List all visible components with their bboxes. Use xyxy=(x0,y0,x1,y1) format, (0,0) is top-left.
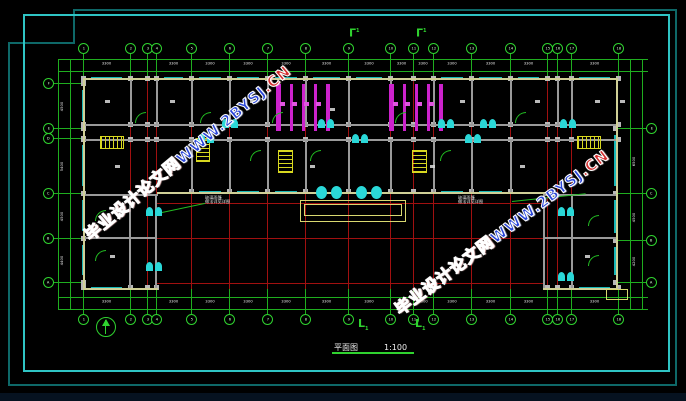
dimension-text: 3300 xyxy=(92,61,121,65)
dimension-chain-line xyxy=(630,59,631,310)
axis-extension-line xyxy=(618,128,646,129)
grid-bubble-top: 6 xyxy=(224,43,235,54)
grid-bubble-top: 7 xyxy=(262,43,273,54)
partition-wall xyxy=(471,80,473,125)
column-grid-line-horizontal xyxy=(83,238,618,239)
double-door xyxy=(480,119,496,128)
axis-extension-line xyxy=(229,52,230,78)
partition-wall xyxy=(156,80,158,125)
grid-bubble-top: 2 xyxy=(125,43,136,54)
grid-bubble-top: 9 xyxy=(343,43,354,54)
partition-wall xyxy=(348,80,350,125)
axis-extension-line xyxy=(510,289,511,315)
dimension-text: 3300 xyxy=(394,61,408,65)
annotation-left: 玻璃雨篷做法详见详图 xyxy=(205,196,241,208)
dimension-text: 5400 xyxy=(60,159,64,174)
grid-bubble-left: C xyxy=(43,188,54,199)
partition-wall xyxy=(305,141,307,193)
axis-extension-line xyxy=(305,289,306,315)
exterior-wall xyxy=(83,288,158,290)
grid-bubble-bottom: 8 xyxy=(300,314,311,325)
interior-wall xyxy=(83,139,618,141)
room-label-mark xyxy=(105,100,110,103)
axis-extension-line xyxy=(52,83,83,84)
axis-extension-line xyxy=(52,238,83,239)
axis-extension-line xyxy=(191,52,192,78)
dimension-text: 3300 xyxy=(313,299,340,303)
axis-extension-line xyxy=(130,52,131,78)
drawing-scale: 1:100 xyxy=(384,343,407,352)
room-label-mark xyxy=(330,108,335,111)
partition-wall xyxy=(348,141,350,193)
door-swing-arc xyxy=(250,150,261,161)
dimension-text: 3300 xyxy=(274,299,298,303)
double-door xyxy=(352,134,368,143)
grid-bubble-bottom: 12 xyxy=(428,314,439,325)
dimension-text: 4500 xyxy=(632,210,636,225)
grid-bubble-bottom: 5 xyxy=(186,314,197,325)
room-label-mark xyxy=(460,100,465,103)
dimension-text: 3300 xyxy=(313,61,340,65)
interior-wall xyxy=(83,124,618,126)
dimension-text: 3300 xyxy=(356,61,382,65)
dimension-text: 3300 xyxy=(417,61,429,65)
axis-extension-line xyxy=(390,52,391,78)
grid-bubble-bottom: 13 xyxy=(466,314,477,325)
toilet-stalls xyxy=(389,84,443,131)
grid-bubble-top: 12 xyxy=(428,43,439,54)
exterior-wall xyxy=(83,78,618,80)
grid-bubble-left: A xyxy=(43,277,54,288)
grid-bubble-top: 16 xyxy=(552,43,563,54)
partition-wall xyxy=(191,80,193,125)
dimension-chain-line xyxy=(58,59,59,310)
room-label-mark xyxy=(110,255,115,258)
dimension-text: 3300 xyxy=(198,61,222,65)
axis-extension-line xyxy=(83,289,84,315)
grid-bubble-top: 5 xyxy=(186,43,197,54)
grid-bubble-bottom: 1 xyxy=(78,314,89,325)
dimension-text: 4500 xyxy=(60,99,64,114)
exterior-wall xyxy=(157,192,545,194)
axis-extension-line xyxy=(147,52,148,78)
grid-bubble-bottom: 6 xyxy=(224,314,235,325)
dimension-text: 3300 xyxy=(163,299,185,303)
door-swing-arc xyxy=(440,150,451,161)
entrance-door xyxy=(356,186,382,199)
double-door xyxy=(438,119,454,128)
exterior-wall xyxy=(83,78,85,290)
axis-extension-line xyxy=(471,52,472,78)
dimension-text: 4500 xyxy=(60,209,64,224)
double-door xyxy=(146,262,162,271)
drawing-title-underline xyxy=(332,352,414,354)
dimension-text: 3300 xyxy=(356,299,382,303)
dimension-text: 3300 xyxy=(478,299,502,303)
section-mark-bottom-2: L1 xyxy=(415,318,426,335)
partition-wall xyxy=(267,141,269,193)
dimension-text: 3300 xyxy=(236,61,260,65)
door-swing-arc xyxy=(135,112,146,123)
partition-wall xyxy=(557,80,559,125)
axis-extension-line xyxy=(471,289,472,315)
grid-bubble-right: E xyxy=(646,123,657,134)
grid-bubble-right: A xyxy=(646,277,657,288)
axis-extension-line xyxy=(547,52,548,78)
room-label-mark xyxy=(520,165,525,168)
grid-bubble-top: 4 xyxy=(151,43,162,54)
axis-extension-line xyxy=(618,282,646,283)
door-swing-arc xyxy=(515,112,526,123)
axis-extension-line xyxy=(191,289,192,315)
column-grid-line-horizontal xyxy=(157,283,545,284)
grid-bubble-bottom: 7 xyxy=(262,314,273,325)
partition-wall xyxy=(130,80,132,125)
axis-extension-line xyxy=(52,138,83,139)
dimension-text: 4400 xyxy=(60,253,64,268)
room-label-mark xyxy=(595,100,600,103)
section-mark-top-2: Γ1 xyxy=(416,26,427,39)
axis-extension-line xyxy=(618,52,619,78)
door-swing-arc xyxy=(310,150,321,161)
axis-extension-line xyxy=(267,289,268,315)
staircase xyxy=(279,151,292,172)
axis-extension-line xyxy=(571,289,572,315)
axis-extension-line xyxy=(156,289,157,315)
dimension-text: 3300 xyxy=(236,299,260,303)
grid-bubble-top: 10 xyxy=(385,43,396,54)
partition-wall xyxy=(229,141,231,193)
entrance-canopy-inner xyxy=(304,204,402,216)
axis-extension-line xyxy=(433,52,434,78)
room-label-mark xyxy=(310,165,315,168)
grid-bubble-top: 11 xyxy=(408,43,419,54)
partition-wall xyxy=(390,141,392,193)
dimension-text: 3300 xyxy=(517,299,540,303)
door-swing-arc xyxy=(95,250,106,261)
north-arrow-icon xyxy=(96,317,116,337)
compass-arrow-tip xyxy=(102,319,110,326)
axis-extension-line xyxy=(348,52,349,78)
axis-extension-line xyxy=(156,52,157,78)
axis-extension-line xyxy=(413,52,414,78)
partition-wall xyxy=(471,141,473,193)
axis-extension-line xyxy=(52,282,83,283)
axis-extension-line xyxy=(547,289,548,315)
room-label-mark xyxy=(620,100,625,103)
dimension-text: 3300 xyxy=(580,299,609,303)
exterior-steps xyxy=(606,289,628,300)
grid-bubble-top: 1 xyxy=(78,43,89,54)
grid-bubble-bottom: 2 xyxy=(125,314,136,325)
dimension-chain-line xyxy=(70,59,71,310)
grid-bubble-top: 18 xyxy=(613,43,624,54)
dimension-text: 3300 xyxy=(478,61,502,65)
section-mark-top-1: Γ1 xyxy=(349,26,360,39)
dimension-text: 4200 xyxy=(632,254,636,269)
dimension-text: 3300 xyxy=(92,299,121,303)
grid-bubble-left: B xyxy=(43,233,54,244)
partition-wall xyxy=(510,80,512,125)
door-swing-arc xyxy=(588,215,599,226)
axis-extension-line xyxy=(52,193,83,194)
cad-floor-plan-canvas: 1122334455667788991010111112121313141415… xyxy=(0,0,686,401)
staircase xyxy=(101,137,123,148)
axis-extension-line xyxy=(305,52,306,78)
grid-bubble-bottom: 17 xyxy=(566,314,577,325)
door-swing-arc xyxy=(272,112,283,123)
double-door xyxy=(558,207,574,216)
annotation-right: 玻璃雨篷做法详见详图 xyxy=(458,196,494,208)
grid-bubble-right: B xyxy=(646,235,657,246)
double-door xyxy=(558,272,574,281)
axis-extension-line xyxy=(83,52,84,78)
double-door xyxy=(465,134,481,143)
dimension-text: 3300 xyxy=(517,61,540,65)
dimension-text: 3300 xyxy=(440,61,464,65)
grid-bubble-bottom: 18 xyxy=(613,314,624,325)
grid-bubble-left: D xyxy=(43,133,54,144)
grid-bubble-bottom: 9 xyxy=(343,314,354,325)
axis-extension-line xyxy=(52,128,83,129)
axis-extension-line xyxy=(571,52,572,78)
double-door xyxy=(560,119,576,128)
dimension-text: 3300 xyxy=(440,299,464,303)
floor-plan-drawing: 1122334455667788991010111112121313141415… xyxy=(0,0,686,401)
grid-bubble-bottom: 14 xyxy=(505,314,516,325)
grid-bubble-bottom: 10 xyxy=(385,314,396,325)
axis-extension-line xyxy=(130,289,131,315)
entrance-door xyxy=(316,186,342,199)
dimension-text: 3300 xyxy=(198,299,222,303)
dimension-text: 3300 xyxy=(580,61,609,65)
grid-bubble-right: C xyxy=(646,188,657,199)
room-label-mark xyxy=(535,100,540,103)
grid-bubble-top: 8 xyxy=(300,43,311,54)
double-door xyxy=(318,119,334,128)
partition-wall xyxy=(510,141,512,193)
exterior-wall xyxy=(616,78,618,290)
grid-bubble-top: 14 xyxy=(505,43,516,54)
room-label-mark xyxy=(585,255,590,258)
axis-extension-line xyxy=(147,289,148,315)
axis-extension-line xyxy=(618,240,646,241)
double-door xyxy=(146,207,162,216)
grid-bubble-top: 13 xyxy=(466,43,477,54)
axis-extension-line xyxy=(557,52,558,78)
grid-bubble-bottom: 4 xyxy=(151,314,162,325)
section-mark-bottom-1: L1 xyxy=(358,318,369,335)
interior-wall xyxy=(545,237,618,239)
dimension-text: 3300 xyxy=(163,61,185,65)
room-label-mark xyxy=(115,165,120,168)
staircase xyxy=(413,151,426,172)
dimension-text: 6500 xyxy=(632,154,636,169)
axis-extension-line xyxy=(557,289,558,315)
axis-extension-line xyxy=(348,289,349,315)
axis-extension-line xyxy=(229,289,230,315)
room-label-mark xyxy=(430,165,435,168)
grid-bubble-top: 17 xyxy=(566,43,577,54)
axis-extension-line xyxy=(618,193,646,194)
room-label-mark xyxy=(170,100,175,103)
grid-bubble-bottom: 16 xyxy=(552,314,563,325)
axis-extension-line xyxy=(510,52,511,78)
grid-bubble-left: F xyxy=(43,78,54,89)
dimension-chain-line xyxy=(642,59,643,310)
drawing-title-name: 平面图 xyxy=(334,343,358,352)
